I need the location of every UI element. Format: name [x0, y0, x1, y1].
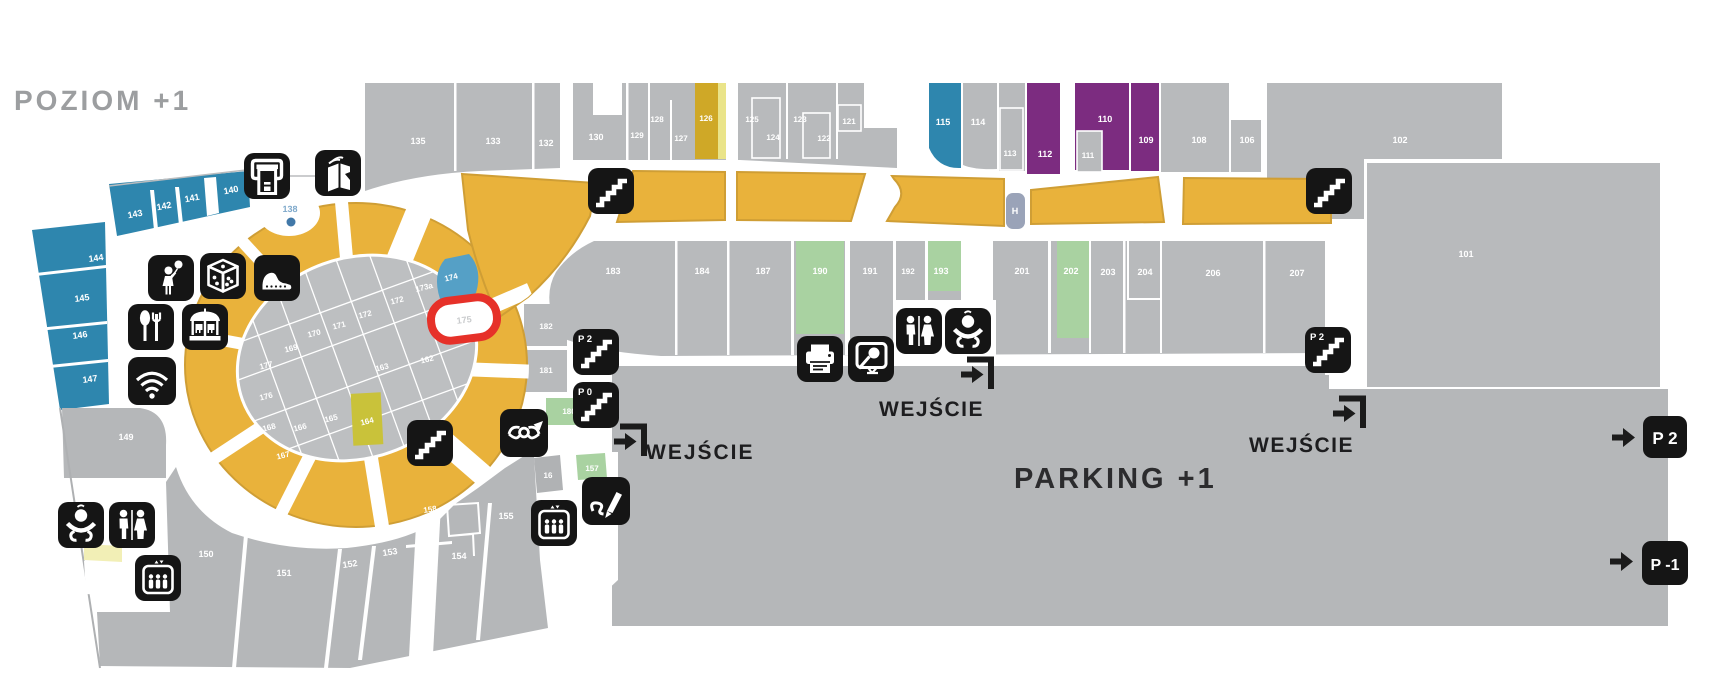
svg-text:115: 115: [936, 117, 951, 127]
svg-text:203: 203: [1100, 267, 1115, 277]
svg-text:102: 102: [1392, 135, 1407, 145]
svg-text:154: 154: [451, 551, 466, 561]
svg-text:16: 16: [544, 471, 553, 480]
svg-text:121: 121: [842, 117, 856, 126]
svg-text:P 2: P 2: [578, 334, 592, 345]
svg-text:147: 147: [82, 373, 98, 385]
svg-text:155: 155: [498, 511, 513, 521]
svg-text:190: 190: [812, 266, 827, 276]
svg-text:H: H: [1012, 206, 1019, 216]
svg-text:193: 193: [933, 266, 948, 276]
svg-text:111: 111: [1082, 151, 1095, 160]
svg-text:201: 201: [1014, 266, 1029, 276]
svg-text:135: 135: [410, 136, 425, 146]
svg-text:125: 125: [745, 115, 759, 124]
svg-text:129: 129: [630, 131, 644, 140]
svg-text:101: 101: [1458, 249, 1473, 259]
svg-text:113: 113: [1004, 149, 1017, 158]
svg-text:PARKING +1: PARKING +1: [1014, 463, 1217, 495]
svg-text:112: 112: [1038, 149, 1053, 159]
svg-text:157: 157: [585, 464, 599, 473]
svg-text:127: 127: [674, 134, 688, 143]
svg-text:114: 114: [971, 117, 986, 127]
svg-text:191: 191: [862, 266, 877, 276]
svg-text:WEJŚCIE: WEJŚCIE: [1249, 433, 1354, 457]
svg-text:WEJŚCIE: WEJŚCIE: [879, 397, 984, 421]
svg-text:WEJŚCIE: WEJŚCIE: [646, 440, 755, 464]
svg-text:202: 202: [1063, 266, 1078, 276]
svg-text:151: 151: [276, 568, 291, 578]
svg-text:150: 150: [198, 549, 213, 559]
svg-text:128: 128: [650, 115, 664, 124]
svg-text:144: 144: [88, 252, 104, 264]
svg-text:124: 124: [766, 133, 780, 142]
svg-text:132: 132: [538, 138, 553, 148]
svg-text:109: 109: [1138, 135, 1153, 145]
svg-text:184: 184: [694, 266, 709, 276]
svg-text:133: 133: [485, 136, 500, 146]
svg-text:146: 146: [72, 329, 88, 341]
svg-text:126: 126: [699, 114, 713, 123]
svg-text:204: 204: [1137, 267, 1152, 277]
svg-text:106: 106: [1239, 135, 1254, 145]
svg-text:130: 130: [588, 132, 603, 142]
svg-text:108: 108: [1191, 135, 1206, 145]
svg-text:183: 183: [605, 266, 620, 276]
svg-text:192: 192: [901, 267, 915, 276]
svg-text:P 2: P 2: [1310, 332, 1324, 343]
svg-text:175: 175: [456, 314, 472, 326]
svg-text:145: 145: [74, 292, 90, 304]
svg-text:P 0: P 0: [578, 387, 592, 398]
svg-text:182: 182: [539, 322, 553, 331]
svg-text:P 2: P 2: [1652, 429, 1677, 448]
svg-text:122: 122: [817, 134, 831, 143]
svg-text:187: 187: [755, 266, 770, 276]
svg-text:181: 181: [539, 366, 553, 375]
svg-text:207: 207: [1289, 268, 1304, 278]
svg-text:P -1: P -1: [1650, 557, 1679, 574]
svg-text:110: 110: [1098, 114, 1113, 124]
svg-text:POZIOM +1: POZIOM +1: [14, 85, 191, 116]
svg-text:206: 206: [1205, 268, 1220, 278]
svg-text:149: 149: [118, 432, 133, 442]
svg-text:138: 138: [282, 204, 297, 214]
svg-text:123: 123: [793, 115, 807, 124]
